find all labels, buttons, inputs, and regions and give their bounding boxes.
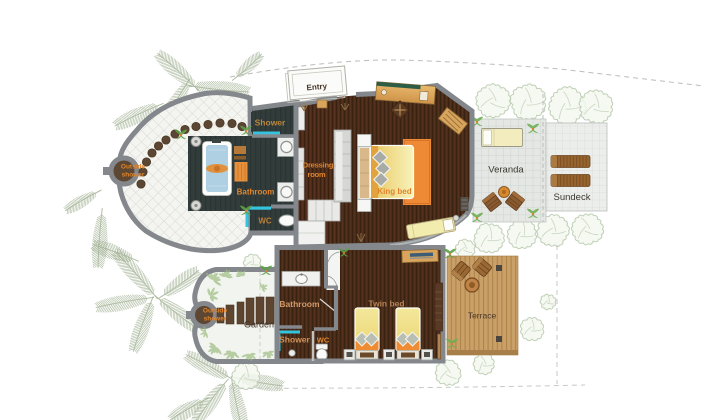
svg-text:Sundeck: Sundeck	[554, 192, 591, 203]
svg-text:Garden: Garden	[244, 320, 274, 330]
svg-text:WC: WC	[317, 336, 330, 345]
svg-text:shower: shower	[204, 316, 227, 323]
svg-text:Bathroom: Bathroom	[237, 188, 275, 197]
svg-text:shower: shower	[122, 172, 145, 179]
svg-text:Outside: Outside	[121, 164, 146, 171]
svg-text:Shower: Shower	[255, 118, 286, 128]
svg-text:Dressing: Dressing	[303, 161, 334, 170]
svg-text:WC: WC	[258, 217, 272, 226]
svg-text:Entry: Entry	[306, 82, 328, 93]
svg-text:Terrace: Terrace	[468, 311, 497, 321]
svg-text:Outside: Outside	[203, 308, 228, 315]
svg-text:King bed: King bed	[377, 187, 411, 196]
svg-text:Shower: Shower	[279, 335, 310, 345]
svg-text:Twin bed: Twin bed	[368, 299, 404, 309]
svg-text:room: room	[308, 170, 326, 179]
svg-text:Bathroom: Bathroom	[279, 299, 320, 309]
svg-text:Veranda: Veranda	[488, 165, 524, 176]
